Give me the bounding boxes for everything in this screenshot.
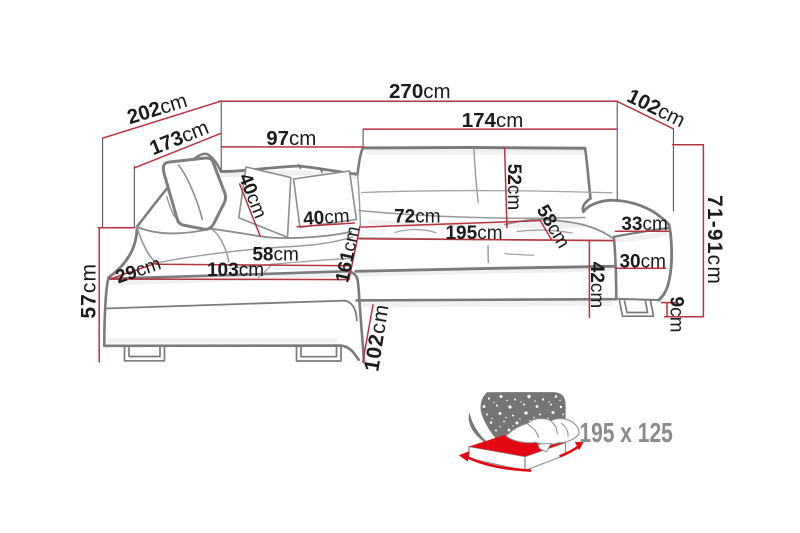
- svg-text:195cm: 195cm: [445, 223, 502, 244]
- svg-text:174cm: 174cm: [462, 109, 524, 132]
- svg-text:72cm: 72cm: [394, 207, 440, 228]
- svg-text:195 x 125: 195 x 125: [579, 418, 673, 449]
- svg-text:270cm: 270cm: [389, 80, 451, 103]
- svg-text:42cm: 42cm: [586, 262, 607, 308]
- svg-text:30cm: 30cm: [619, 251, 665, 272]
- svg-text:97cm: 97cm: [266, 127, 316, 150]
- svg-text:33cm: 33cm: [621, 214, 667, 235]
- svg-text:9cm: 9cm: [666, 297, 687, 333]
- svg-text:103cm: 103cm: [207, 260, 264, 281]
- svg-text:71-91cm: 71-91cm: [703, 195, 726, 285]
- svg-text:52cm: 52cm: [503, 164, 524, 210]
- svg-text:57cm: 57cm: [78, 263, 101, 319]
